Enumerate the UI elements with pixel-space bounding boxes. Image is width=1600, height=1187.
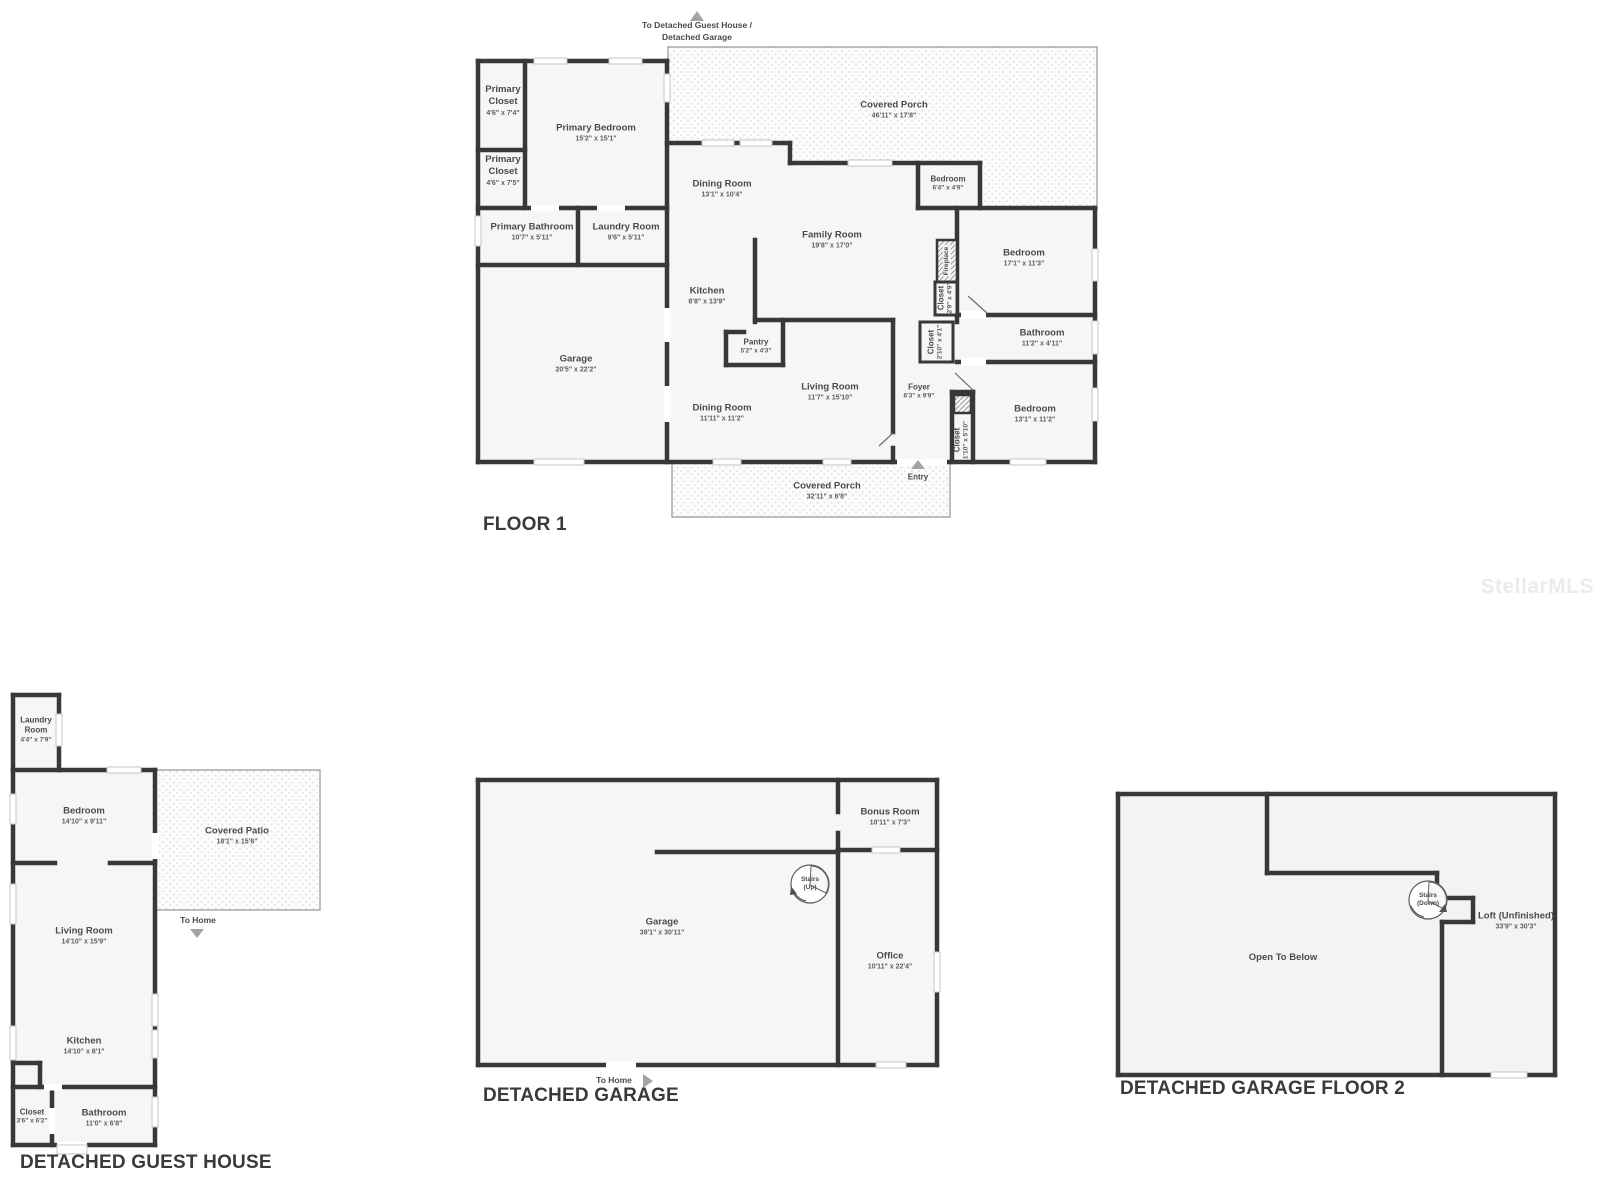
label-closet-b: Closet2'10" x 4'1": [927, 325, 946, 360]
label-covered-porch-top: Covered Porch46'11" x 17'8": [860, 99, 928, 120]
entry-label: Entry: [908, 471, 928, 482]
label-closet-a: Closet2'9" x 4'9": [937, 283, 956, 314]
label-kitchen: Kitchen8'8" x 13'9": [688, 285, 725, 306]
label-dg-garage: Garage39'1" x 30'11": [640, 916, 685, 937]
label-closet-c: Closet1'10" x 5'10": [953, 421, 972, 459]
stairs-up-label: Stairs (Up): [801, 876, 819, 892]
guest-house-title: DETACHED GUEST HOUSE: [20, 1152, 272, 1174]
label-gh-bedroom: Bedroom14'10" x 9'11": [62, 805, 107, 826]
label-primary-bathroom: Primary Bathroom10'7" x 5'11": [491, 221, 574, 242]
to-home-arrow-icon: [190, 929, 204, 938]
floor1-title: FLOOR 1: [483, 514, 567, 536]
label-gh-covered-patio: Covered Patio18'1" x 15'6": [205, 825, 269, 846]
label-gh-closet: Closet3'6" x 6'2": [17, 1108, 48, 1127]
detached-garage-floor2-plan: [1118, 794, 1555, 1078]
label-dg-office: Office10'11" x 22'4": [868, 950, 913, 971]
stairs-down-label: Stairs (Down): [1417, 892, 1439, 908]
label-pantry: Pantry5'2" x 4'3": [741, 338, 772, 357]
label-foyer: Foyer6'3" x 9'9": [904, 383, 935, 402]
label-gh-laundry: Laundry Room4'4" x 7'9": [12, 715, 60, 744]
stellar-mls-watermark: StellarMLS: [1480, 575, 1594, 599]
floorplan-sheet: Primary Closet4'6" x 7'4" Primary Bedroo…: [0, 0, 1600, 1187]
label-laundry-room: Laundry Room9'6" x 5'11": [592, 221, 659, 242]
floorplan-canvas: [0, 0, 1600, 1187]
gh-to-home-label: To Home: [180, 915, 216, 927]
label-living-room: Living Room11'7" x 15'10": [801, 381, 859, 402]
to-guest-house-label: To Detached Guest House / Detached Garag…: [642, 20, 752, 44]
label-bathroom: Bathroom11'2" x 4'11": [1020, 327, 1065, 348]
label-gh-bathroom: Bathroom11'0" x 6'8": [82, 1107, 127, 1128]
label-dg2-loft: Loft (Unfinished)33'9" x 30'3": [1478, 910, 1554, 931]
label-dining-room-bottom: Dining Room11'11" x 11'2": [692, 402, 751, 423]
label-covered-porch-bottom: Covered Porch32'11" x 6'8": [793, 480, 861, 501]
label-primary-closet-1: Primary Closet4'6" x 7'4": [477, 84, 529, 118]
detached-garage-title: DETACHED GARAGE: [483, 1085, 679, 1107]
label-dining-room-top: Dining Room13'1" x 10'4": [692, 178, 751, 199]
label-fireplace: Fireplace: [943, 246, 951, 277]
label-bedroom-right: Bedroom17'1" x 11'3": [1003, 247, 1045, 268]
label-primary-closet-2: Primary Closet4'6" x 7'5": [477, 154, 529, 188]
label-dg-bonus-room: Bonus Room10'11" x 7'3": [860, 806, 919, 827]
detached-garage-floor2-title: DETACHED GARAGE FLOOR 2: [1120, 1078, 1405, 1100]
label-bedroom-small: Bedroom6'4" x 4'9": [930, 175, 965, 194]
label-gh-kitchen: Kitchen14'10" x 8'1": [63, 1035, 104, 1056]
dg-to-home-label: To Home: [596, 1075, 632, 1087]
label-gh-living-room: Living Room14'10" x 15'9": [55, 925, 113, 946]
label-bedroom-bottom: Bedroom13'1" x 11'2": [1014, 403, 1056, 424]
label-primary-bedroom: Primary Bedroom15'2" x 15'1": [556, 122, 636, 143]
label-garage: Garage20'5" x 22'2": [555, 353, 596, 374]
label-family-room: Family Room19'8" x 17'0": [802, 229, 862, 250]
label-dg2-open-to-below: Open To Below: [1249, 952, 1317, 964]
